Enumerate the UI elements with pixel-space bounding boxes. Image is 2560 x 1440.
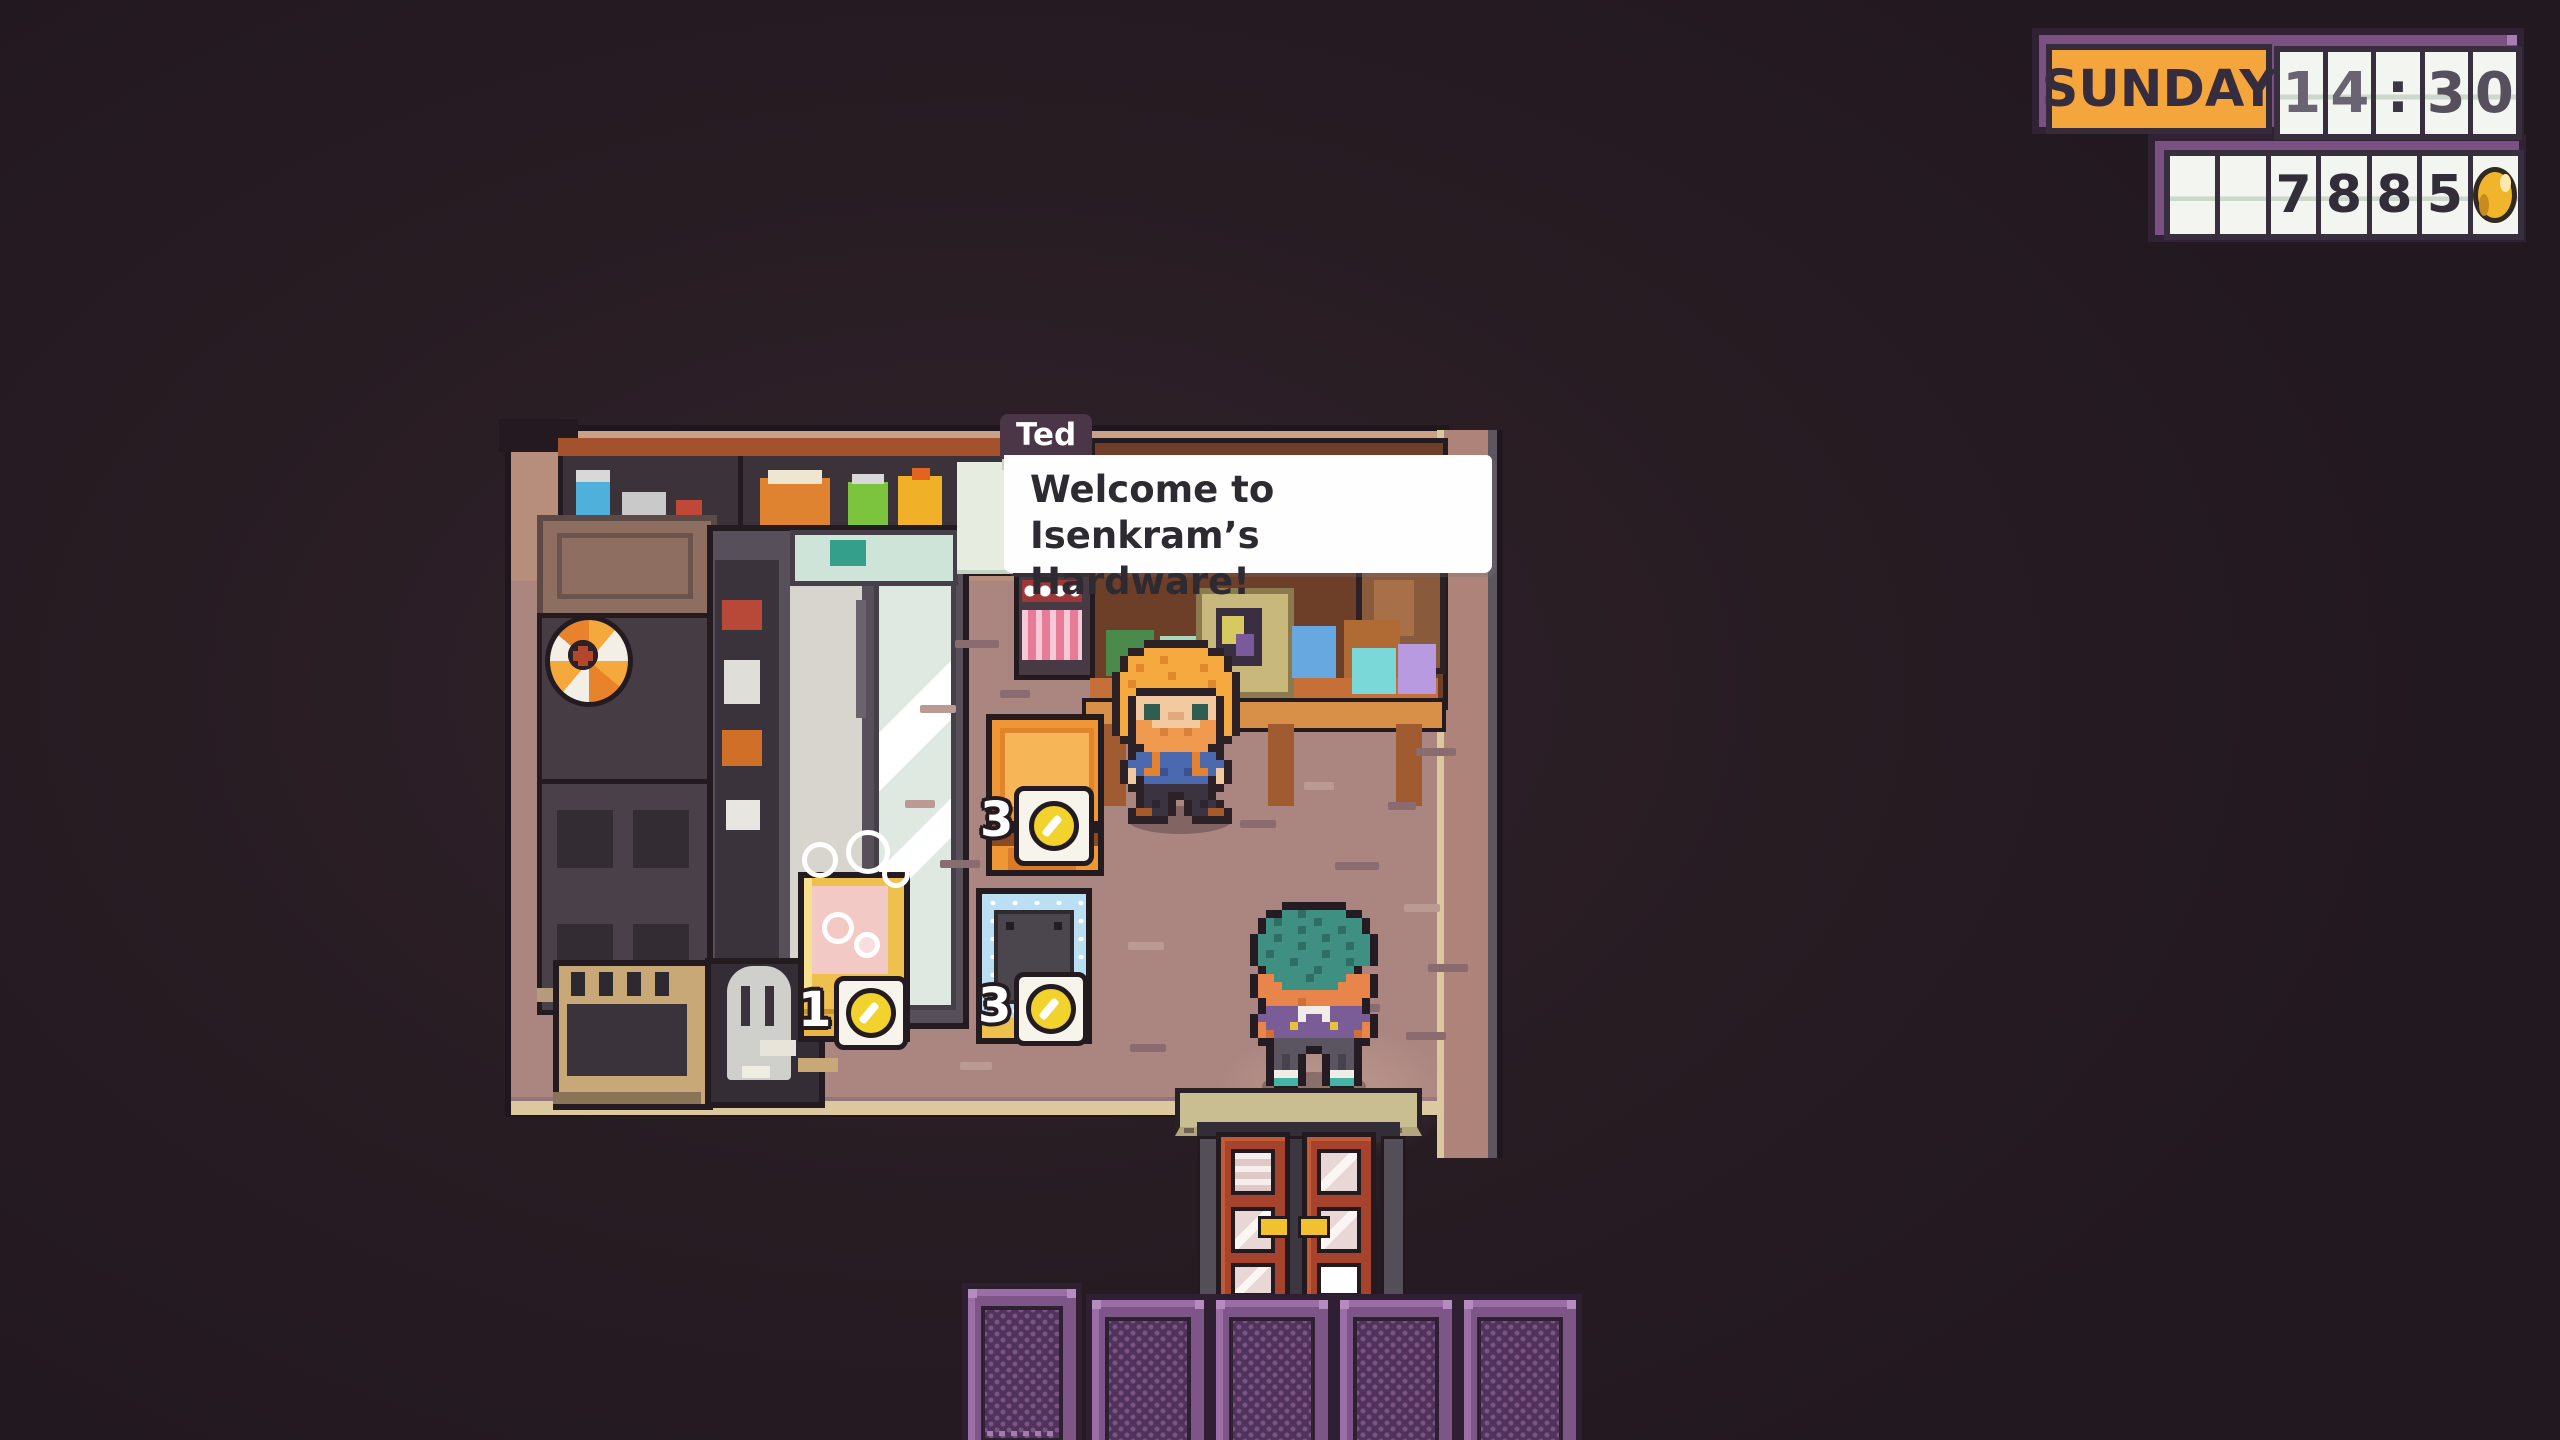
fridge-handle (856, 600, 866, 718)
floor-dash (1304, 782, 1334, 790)
shelf-mid-top-bar (738, 438, 1010, 456)
shelf-left-top-bar (558, 438, 738, 456)
counter-top (1082, 698, 1446, 732)
money-digit: 8 (2321, 156, 2371, 234)
picture-blotch-purple (1236, 634, 1254, 656)
box-orange-top (768, 470, 822, 484)
floor-dash (1335, 862, 1379, 870)
small-item-red (722, 600, 762, 630)
fence-panel (1086, 1294, 1210, 1440)
floor-dash (940, 860, 980, 868)
tub-water (812, 886, 888, 974)
amp-panel (567, 1004, 687, 1076)
gold-coin-icon (2473, 167, 2517, 223)
amp-feet (553, 1092, 701, 1104)
floor-dash (1404, 904, 1440, 912)
small-item-orange (722, 730, 762, 766)
time-digit: 0 (2473, 52, 2516, 134)
price-tag-orange-crate (1014, 786, 1094, 866)
floating-bubble (802, 842, 838, 878)
money-digit: 8 (2372, 156, 2422, 234)
gnome-slit (741, 986, 750, 1026)
dialogue-speaker-tag: Ted (1000, 414, 1092, 459)
price-bathtub: 1 (798, 982, 831, 1038)
floor-dash (1240, 820, 1276, 828)
door-pillar-right (1381, 1136, 1406, 1302)
game-viewport: 3 1 3 (0, 0, 2560, 1440)
jar-blue-lid (576, 470, 610, 482)
price-orange-crate: 3 (980, 792, 1013, 848)
hud-time-display: 1 4 : 3 0 (2274, 46, 2522, 140)
time-digit: 3 (2425, 52, 2473, 134)
box-cyan (1352, 648, 1396, 694)
floor-dash (955, 640, 999, 648)
wood-crate-inner (557, 533, 693, 599)
jar-green-lid (852, 474, 884, 484)
coin-icon (1026, 984, 1076, 1034)
life-preserver (545, 615, 633, 707)
display-item-teal (830, 540, 866, 566)
floor-dash (920, 705, 956, 713)
cabinet-recess (633, 810, 689, 868)
coin-icon (846, 988, 896, 1038)
box-lavender (1398, 644, 1436, 694)
tag-tick (1089, 821, 1098, 833)
floating-bubble (882, 860, 910, 888)
time-colon: : (2376, 52, 2424, 134)
small-item-white (724, 660, 760, 704)
amp-grille-row (571, 972, 683, 996)
life-preserver-cross (578, 646, 588, 666)
money-digit (2220, 156, 2270, 234)
floor-dash (1000, 690, 1030, 698)
floor-dash (1180, 770, 1224, 778)
time-digit: 1 (2280, 52, 2328, 134)
price-tag-bathtub (834, 976, 908, 1050)
price-blue-machine: 3 (978, 978, 1011, 1034)
dialogue-line: Welcome to Isenkram’s (1030, 467, 1480, 559)
gnome-slit (765, 986, 774, 1026)
gnome-figure (727, 966, 791, 1080)
debris (798, 1058, 838, 1072)
money-coin-cell (2473, 156, 2518, 234)
fence-panel (962, 1283, 1082, 1440)
money-digit: 7 (2271, 156, 2321, 234)
door-handle-right (1298, 1216, 1330, 1238)
display-case (790, 530, 958, 586)
tub-rim-highlight (804, 878, 812, 998)
player-character (1250, 902, 1258, 910)
coin-icon (1029, 801, 1079, 851)
fence-panel (1334, 1294, 1458, 1440)
hud-money-display: 7 8 8 5 (2164, 150, 2524, 240)
floor-dash (1128, 942, 1164, 950)
counter-leg (1396, 724, 1422, 806)
counter-leg (1268, 724, 1294, 806)
debris (742, 1066, 770, 1078)
dialogue-line: Hardware! (1030, 559, 1480, 605)
jar-duck-beak (912, 468, 930, 480)
fence-panel (1210, 1294, 1334, 1440)
floor-dash (1130, 1044, 1166, 1052)
shelf-item-mint (1160, 636, 1200, 676)
money-digit: 5 (2422, 156, 2472, 234)
floor-dash (1428, 964, 1468, 972)
small-item-mug (726, 800, 760, 830)
ted-shadow (1128, 806, 1232, 834)
floor-dash (960, 1062, 992, 1070)
cabinet-recess (557, 810, 613, 868)
dialogue-box[interactable]: Welcome to Isenkram’s Hardware! (1004, 455, 1492, 573)
hud-day-label: SUNDAY (2046, 44, 2272, 134)
fence-panel (1458, 1294, 1582, 1440)
pink-cabinet-front (1022, 610, 1082, 660)
debris (760, 1040, 796, 1056)
floor-dash (905, 800, 935, 808)
npc-ted[interactable] (1112, 640, 1120, 648)
time-digit: 4 (2328, 52, 2376, 134)
money-digit (2170, 156, 2220, 234)
floor-dash (1416, 748, 1456, 756)
shelf-item-blue-jug (1292, 626, 1336, 678)
price-tag-blue-machine (1014, 972, 1088, 1046)
shelf-item-green (1106, 630, 1154, 676)
door-handle-left (1258, 1216, 1290, 1238)
floor-dash (1388, 802, 1416, 810)
